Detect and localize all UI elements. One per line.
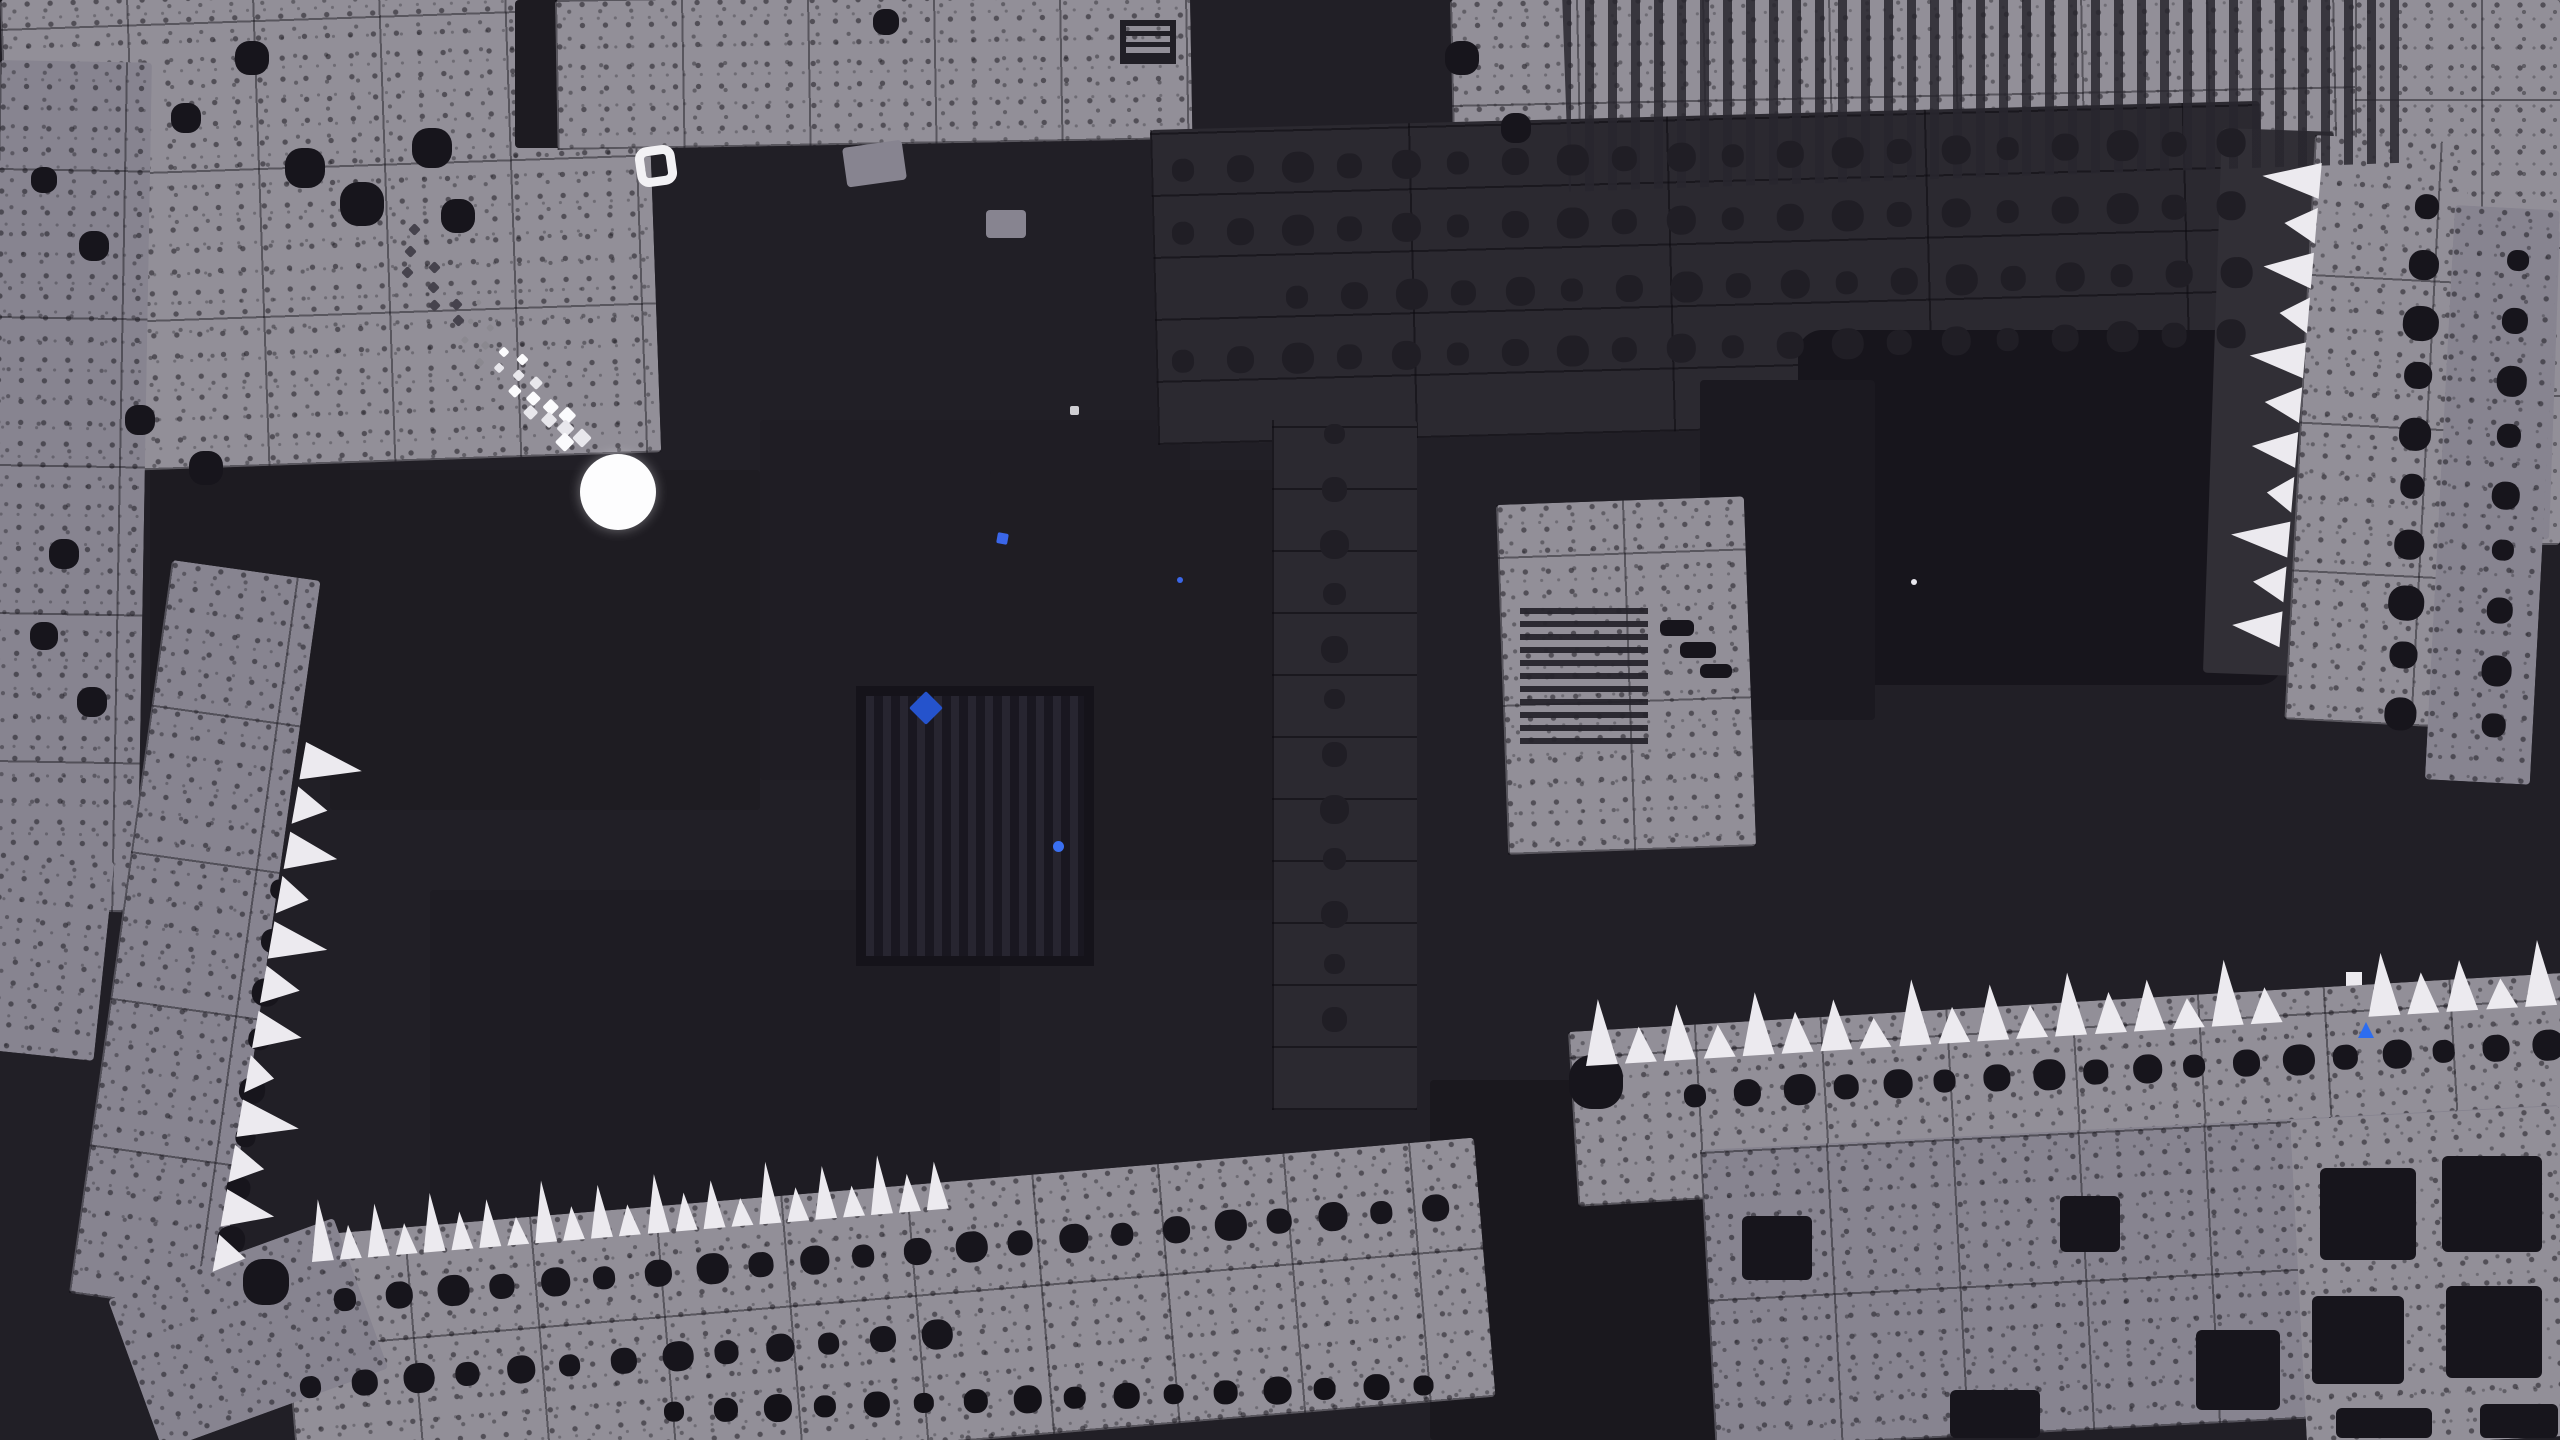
dark-blob	[1501, 113, 1531, 143]
spike	[1895, 978, 1931, 1046]
spike	[2208, 959, 2244, 1027]
spike	[784, 1186, 809, 1222]
dark-blob	[125, 405, 155, 435]
dot	[1337, 216, 1362, 241]
dark-square-tile	[1950, 1390, 2040, 1438]
spike	[672, 1192, 697, 1232]
dot	[2481, 713, 2506, 738]
dot	[817, 1332, 840, 1355]
dot	[2399, 473, 2425, 499]
dot	[2182, 1054, 2205, 1077]
dot	[914, 1393, 934, 1413]
dot	[1110, 1222, 1134, 1246]
dot	[1941, 197, 1971, 227]
dot	[2106, 320, 2139, 353]
wall-glyph	[1120, 20, 1176, 64]
dot	[2402, 305, 2439, 342]
spike	[2278, 295, 2310, 333]
dot	[664, 1401, 684, 1421]
spike	[419, 1192, 446, 1253]
dot	[2389, 641, 2418, 670]
dot	[2507, 249, 2529, 271]
dot	[1502, 338, 1530, 366]
dot	[954, 1229, 988, 1263]
spike	[561, 1205, 586, 1241]
dot	[506, 1354, 537, 1385]
dark-blob	[285, 148, 325, 188]
spike	[2364, 952, 2400, 1017]
dot	[2388, 585, 2425, 622]
dot	[1007, 1229, 1034, 1256]
spike	[449, 1211, 474, 1251]
dot	[1612, 146, 1637, 171]
dot	[1320, 530, 1350, 560]
room-shade-a	[330, 470, 760, 810]
dot	[2051, 196, 2079, 224]
player-ball	[580, 454, 656, 530]
spike	[2405, 971, 2440, 1014]
dot	[2106, 129, 2139, 162]
dot	[1162, 1215, 1191, 1244]
debris-1	[842, 140, 907, 188]
large-vertical-grate	[856, 686, 1094, 966]
spike	[699, 1179, 725, 1229]
dark-square-tile	[2336, 1408, 2432, 1438]
dot	[2216, 190, 2246, 220]
dot	[1776, 203, 1804, 231]
dot	[1983, 1063, 2012, 1092]
spike	[1936, 1006, 1970, 1044]
dark-blob	[1445, 41, 1479, 75]
dark-square-tile	[2312, 1296, 2404, 1384]
dot	[2486, 597, 2513, 624]
white-speck	[1911, 579, 1917, 585]
spike	[1739, 991, 1775, 1056]
spike	[292, 787, 331, 830]
dot	[1313, 1378, 1336, 1401]
ring-marker	[633, 143, 678, 188]
dot	[1321, 901, 1348, 928]
dot	[1556, 206, 1589, 239]
dot	[1341, 281, 1369, 309]
dark-square-tile	[2320, 1168, 2416, 1260]
dot	[299, 1376, 322, 1399]
dot	[2398, 417, 2432, 451]
dot	[1831, 199, 1864, 232]
dot	[2393, 529, 2425, 561]
dot	[2383, 697, 2417, 731]
dot	[2332, 1044, 2358, 1070]
dot	[2532, 1028, 2560, 1062]
dark-blob	[171, 103, 201, 133]
dark-blob	[30, 622, 58, 650]
dot	[799, 1244, 831, 1276]
spike	[896, 1173, 921, 1213]
dot	[1369, 1200, 1393, 1224]
dot	[2382, 1038, 2413, 1069]
dark-blob	[49, 539, 79, 569]
spike	[2231, 607, 2283, 647]
wall-dots-column	[1322, 424, 1347, 1060]
dot	[454, 1361, 480, 1387]
dot	[2408, 249, 2440, 281]
dot	[1502, 210, 1530, 238]
dot	[1670, 270, 1703, 303]
dot	[1058, 1222, 1090, 1254]
spike	[236, 1100, 302, 1148]
dot	[1616, 274, 1644, 302]
spike	[2229, 517, 2290, 558]
dot	[2132, 1053, 2163, 1084]
dot	[1996, 200, 2019, 223]
spike	[923, 1161, 949, 1211]
dot	[436, 1273, 470, 1307]
dot	[333, 1287, 357, 1311]
dot	[1286, 285, 1309, 308]
dot	[2083, 1059, 2109, 1085]
dot	[1783, 1072, 1817, 1106]
dark-blob	[441, 199, 475, 233]
blue-square	[996, 532, 1009, 545]
dot	[1612, 209, 1637, 234]
dot	[1941, 134, 1971, 164]
dot	[1282, 150, 1315, 183]
spike	[2263, 384, 2302, 423]
dot	[1317, 1200, 1349, 1232]
spike	[393, 1222, 418, 1255]
dot	[540, 1265, 572, 1297]
dot	[1392, 212, 1422, 242]
dark-square-tile	[1680, 642, 1716, 658]
dot	[351, 1369, 379, 1397]
game-viewport[interactable]	[0, 0, 2560, 1440]
dot	[714, 1397, 739, 1422]
horizontal-vent	[1520, 604, 1648, 744]
dot	[2110, 264, 2133, 287]
dark-square-tile	[2446, 1286, 2542, 1378]
dot	[1337, 153, 1362, 178]
dot	[963, 1389, 988, 1414]
spike	[284, 831, 341, 877]
dot	[863, 1391, 890, 1418]
spike	[2249, 986, 2283, 1024]
dot	[1213, 1380, 1238, 1405]
dot	[1396, 277, 1429, 310]
dot	[2491, 481, 2521, 511]
dot	[402, 1361, 435, 1394]
dot	[1322, 1007, 1347, 1032]
tiny-blue-dot	[1177, 577, 1183, 583]
dark-blob	[873, 9, 899, 35]
spike	[642, 1173, 669, 1234]
dot	[1322, 477, 1347, 502]
dot	[2232, 1048, 2261, 1077]
dot	[385, 1280, 414, 1309]
dot	[2032, 1057, 2066, 1091]
dot	[2051, 324, 2079, 352]
blue-dot	[1053, 841, 1064, 852]
dark-square-tile	[2442, 1156, 2542, 1252]
spike	[587, 1184, 613, 1239]
dark-blob	[189, 451, 223, 485]
dot	[1666, 142, 1696, 172]
dot	[1163, 1384, 1183, 1404]
dot	[1941, 325, 1971, 355]
spike	[729, 1197, 753, 1227]
dark-square-tile	[2480, 1404, 2558, 1438]
dot	[1214, 1207, 1248, 1241]
spike	[1779, 1011, 1814, 1054]
dark-square-tile	[1660, 620, 1694, 636]
dot	[1323, 848, 1346, 871]
dot	[2161, 322, 2186, 347]
dot	[765, 1332, 796, 1363]
dot	[488, 1273, 515, 1300]
spike	[1701, 1024, 1735, 1059]
dot	[2282, 1043, 2316, 1077]
dot	[1172, 158, 1195, 181]
spike	[276, 876, 312, 919]
dot	[1831, 327, 1864, 360]
spike	[811, 1165, 837, 1220]
dot	[1392, 149, 1422, 179]
dot	[1227, 154, 1255, 182]
dot	[1063, 1386, 1086, 1409]
dot	[1227, 217, 1255, 245]
dot	[1890, 267, 1918, 295]
dot	[2055, 261, 2085, 291]
spike	[530, 1180, 557, 1244]
dot	[1836, 271, 1859, 294]
dark-blob	[340, 182, 384, 226]
dot	[1506, 276, 1536, 306]
dot	[1666, 205, 1696, 235]
dot	[1883, 1068, 1914, 1099]
dot	[1263, 1376, 1292, 1405]
dot	[869, 1325, 897, 1353]
dot	[921, 1318, 954, 1351]
dark-square-tile	[2060, 1196, 2120, 1252]
dot	[1447, 214, 1470, 237]
dot	[763, 1393, 792, 1422]
spike	[2262, 248, 2314, 288]
dot	[2414, 194, 2440, 220]
dot	[1321, 636, 1348, 663]
dot	[2161, 194, 2186, 219]
spike	[2092, 991, 2127, 1034]
dot	[814, 1395, 837, 1418]
dark-blob	[31, 167, 57, 193]
dot	[2216, 127, 2246, 157]
dot	[610, 1347, 638, 1375]
dot	[1996, 137, 2019, 160]
dot	[1013, 1385, 1042, 1414]
dot	[1722, 335, 1745, 358]
spike	[2251, 564, 2286, 603]
dot	[903, 1236, 932, 1265]
spike	[754, 1161, 781, 1225]
dot	[1945, 263, 1978, 296]
dot	[2106, 192, 2139, 225]
dot	[2432, 1039, 2455, 1062]
spike	[866, 1154, 893, 1215]
dot	[592, 1265, 616, 1289]
spike	[268, 921, 331, 968]
spike	[2171, 997, 2205, 1029]
dot	[2501, 307, 2528, 334]
dot	[1323, 583, 1346, 606]
spike	[2052, 972, 2088, 1037]
dot	[2404, 361, 2433, 390]
spike	[2131, 979, 2166, 1032]
dot	[748, 1251, 775, 1278]
dot	[2496, 365, 2528, 397]
dot	[1421, 1193, 1450, 1222]
dot	[1722, 144, 1745, 167]
dot	[1996, 328, 2019, 351]
spike	[221, 1189, 278, 1235]
dot	[2482, 1033, 2511, 1062]
dot	[2492, 539, 2514, 561]
dot	[1722, 207, 1745, 230]
dot	[1282, 213, 1315, 246]
dot	[1833, 1073, 1859, 1099]
spike	[2248, 338, 2306, 379]
dot	[1266, 1207, 1293, 1234]
dot	[714, 1339, 740, 1365]
dot	[1886, 138, 1911, 163]
spike	[2283, 205, 2318, 244]
dot	[1320, 795, 1350, 825]
spike	[252, 1010, 305, 1056]
spike	[2265, 475, 2294, 513]
dot	[1324, 689, 1345, 710]
dot	[1413, 1375, 1433, 1395]
dot	[1561, 278, 1584, 301]
left-column	[0, 60, 152, 913]
dot	[2480, 655, 2512, 687]
spike	[505, 1216, 529, 1246]
spike	[1974, 983, 2009, 1041]
dot	[644, 1258, 673, 1287]
spike	[617, 1203, 642, 1236]
dot	[1886, 201, 1911, 226]
dot	[1502, 147, 1530, 175]
dark-square-tile	[1742, 1216, 1812, 1280]
dot	[1282, 341, 1315, 374]
dot	[661, 1340, 694, 1373]
gray-speck	[1070, 406, 1079, 415]
dark-square-tile	[1700, 664, 1732, 678]
spike	[2521, 939, 2557, 1007]
spike	[2261, 158, 2322, 199]
dot	[1556, 143, 1589, 176]
dot	[1612, 337, 1637, 362]
spike	[213, 1234, 249, 1277]
spike	[840, 1185, 865, 1218]
dot	[1337, 344, 1362, 369]
spike	[2014, 1004, 2048, 1039]
dot	[1113, 1382, 1140, 1409]
dot	[1451, 280, 1476, 305]
spike	[1858, 1017, 1892, 1049]
dot	[1324, 424, 1345, 445]
spike	[1818, 998, 1853, 1051]
dot	[1227, 345, 1255, 373]
spike	[1623, 1026, 1657, 1064]
spike	[1661, 1003, 1696, 1061]
spike	[260, 966, 303, 1010]
dot	[1726, 273, 1751, 298]
dot	[1322, 742, 1347, 767]
dot	[1776, 331, 1804, 359]
dark-blob	[235, 41, 269, 75]
left-lower-wedge	[0, 850, 114, 1061]
spike	[228, 1145, 267, 1188]
dot	[1172, 221, 1195, 244]
dot	[1933, 1069, 1956, 1092]
spike	[2443, 959, 2478, 1012]
dark-square-tile	[2196, 1330, 2280, 1410]
dot	[1363, 1374, 1390, 1401]
dark-blob	[79, 231, 109, 261]
dot	[2051, 133, 2079, 161]
spike	[476, 1198, 502, 1248]
dot	[1831, 136, 1864, 169]
dot	[1776, 140, 1804, 168]
debris-2	[986, 210, 1026, 238]
dot	[1324, 954, 1345, 975]
spike	[2250, 428, 2298, 468]
dot	[558, 1354, 581, 1377]
dot	[1733, 1078, 1762, 1107]
dot	[1447, 342, 1470, 365]
dot	[1780, 269, 1810, 299]
dot	[2000, 265, 2025, 290]
dot	[1683, 1084, 1706, 1107]
dot	[1666, 333, 1696, 363]
dot	[1447, 151, 1470, 174]
dot	[851, 1244, 875, 1268]
spike	[363, 1203, 389, 1258]
dot	[1172, 349, 1195, 372]
blue-tri	[2358, 1022, 2374, 1038]
spike	[244, 1055, 277, 1097]
dot	[1556, 334, 1589, 367]
dark-blob	[77, 687, 107, 717]
dot	[695, 1251, 729, 1285]
spike	[307, 1198, 334, 1262]
dot	[1886, 329, 1911, 354]
dot	[1392, 340, 1422, 370]
dot	[2220, 256, 2253, 289]
spike	[1582, 998, 1618, 1066]
dark-blob	[412, 128, 452, 168]
spike	[337, 1224, 362, 1260]
dot	[2216, 318, 2246, 348]
dot	[2165, 260, 2193, 288]
dot	[2161, 131, 2186, 156]
spike	[2484, 977, 2518, 1009]
dot	[2496, 423, 2521, 448]
